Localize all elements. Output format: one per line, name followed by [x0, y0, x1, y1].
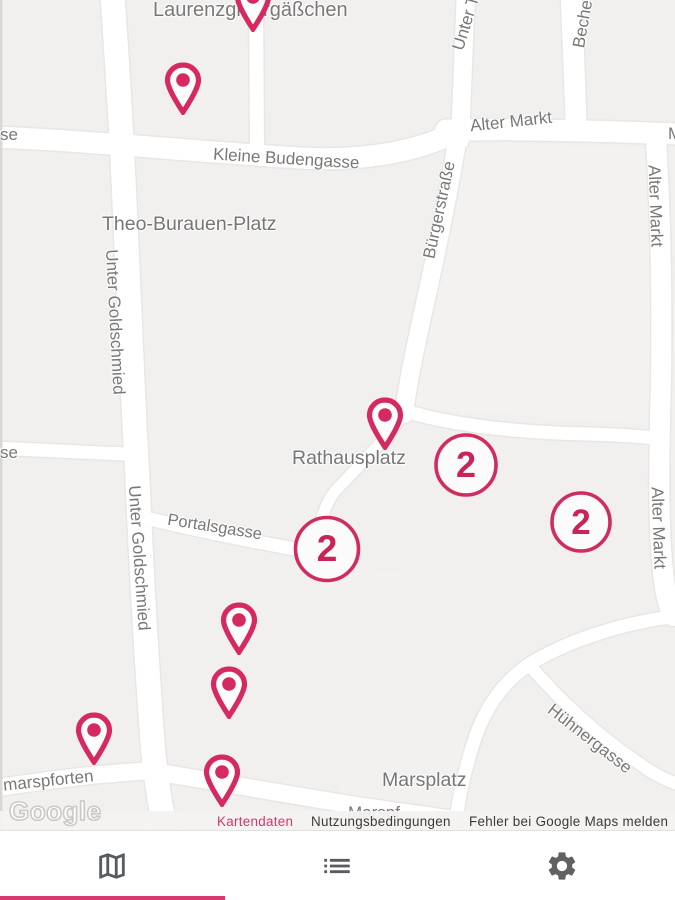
svg-text:2: 2 [317, 528, 338, 569]
svg-text:2: 2 [571, 503, 590, 542]
svg-text:2: 2 [456, 444, 476, 485]
